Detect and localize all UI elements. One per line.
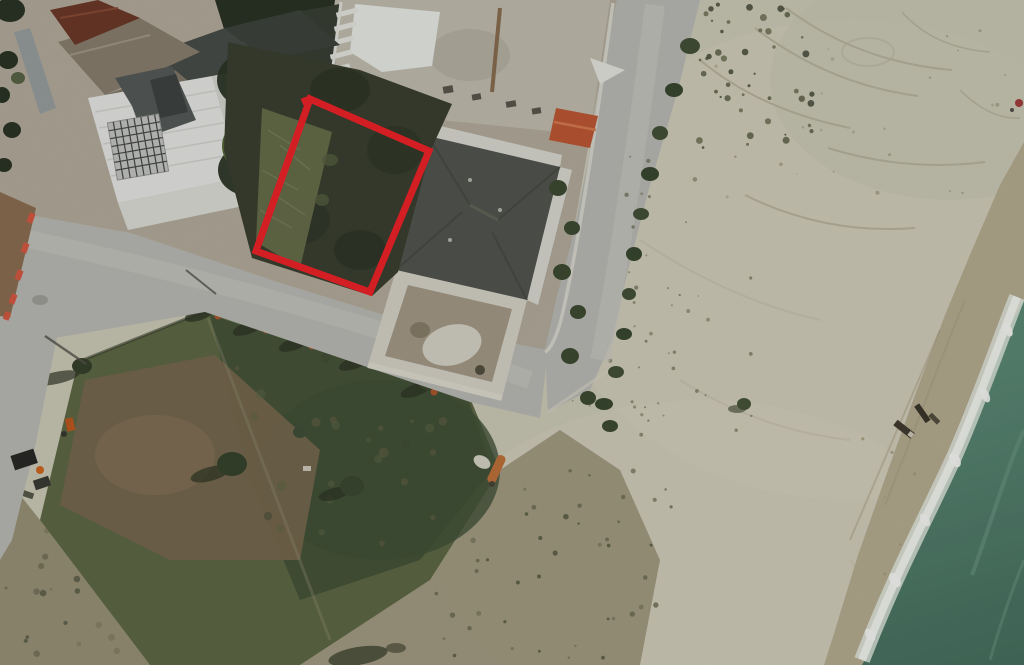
photo-grain-overlay [0, 0, 1024, 665]
satellite-image-viewport: Aerial satellite view of a beachfront ne… [0, 0, 1024, 665]
satellite-image: Aerial satellite view of a beachfront ne… [0, 0, 1024, 665]
